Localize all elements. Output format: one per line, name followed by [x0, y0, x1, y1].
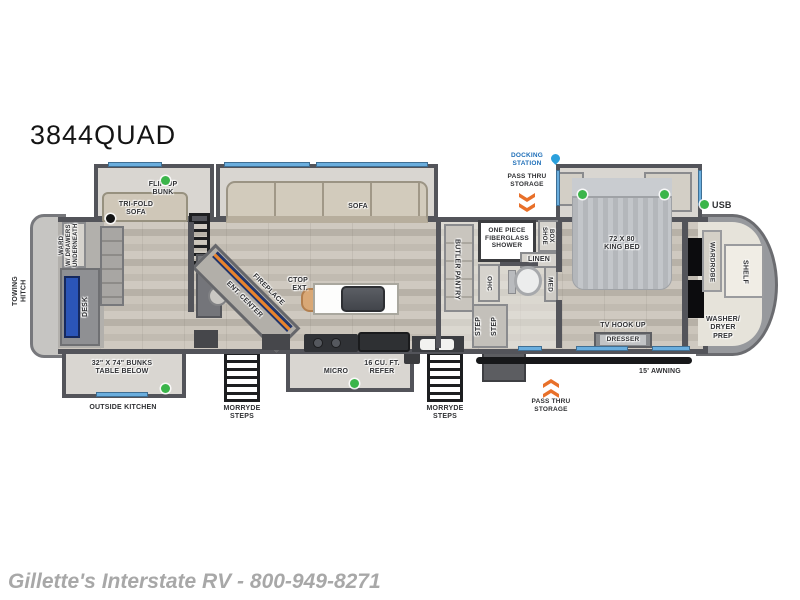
- washer-dryer-label: WASHER/ DRYER PREP: [700, 316, 746, 341]
- counter-left: [194, 330, 218, 348]
- bunks-indicator-dot: [161, 384, 170, 393]
- micro-label: MICRO: [316, 368, 356, 376]
- bunk-window: [108, 162, 162, 167]
- dresser-label: DRESSER: [600, 336, 646, 344]
- desk-label: DESK: [82, 288, 96, 326]
- king-bed-label: 72 X 80 KING BED: [594, 236, 650, 253]
- shower-label: ONE PIECE FIBERGLASS SHOWER: [479, 227, 535, 250]
- towing-hitch-label: TOWING HITCH: [12, 264, 26, 318]
- toilet: [514, 266, 542, 296]
- sofa-window-right: [316, 162, 428, 167]
- tv-hook-up-label: TV HOOK UP: [592, 322, 654, 330]
- floorplan-page: 3844QUAD Gillette's Interstate RV - 800-…: [0, 0, 800, 600]
- bunkroom-wall: [188, 222, 194, 312]
- wardrobe-label: WARDROBE: [708, 235, 716, 289]
- med-label: MED: [546, 271, 554, 299]
- refrigerator-top: [358, 332, 410, 352]
- outside-kitchen-label: OUTSIDE KITCHEN: [74, 404, 172, 412]
- bedroom-rear-wall: [682, 222, 688, 348]
- counter-mid: [262, 334, 290, 350]
- bunks-table-label: 32" X 74" BUNKS TABLE BELOW: [72, 360, 172, 377]
- usb-label: USB: [712, 200, 738, 211]
- docking-station-label: DOCKING STATION: [504, 152, 550, 167]
- sofa-window-left: [224, 162, 310, 167]
- sofa: [226, 181, 428, 223]
- step-label-1: STEP: [475, 309, 488, 343]
- tri-fold-sofa-label: TRI-FOLD SOFA: [110, 201, 162, 218]
- pass-thru-storage-box: [482, 350, 526, 382]
- step-label-2: STEP: [491, 309, 504, 343]
- bunk-indicator-dot: [161, 176, 170, 185]
- butler-pantry-label: BUTLER PANTRY: [452, 228, 460, 310]
- morryde-steps-right-label: MORRYDE STEPS: [423, 405, 467, 422]
- sofa-indicator-dot: [106, 214, 115, 223]
- chevron-up-icon: [543, 378, 559, 399]
- linen-label: LINEN: [521, 256, 557, 264]
- bed-window-left: [556, 170, 560, 206]
- stove-burner-right: [331, 338, 341, 348]
- water-drop-icon: [549, 152, 562, 165]
- morryde-steps-left-label: MORRYDE STEPS: [220, 405, 264, 422]
- morryde-steps-left: [224, 352, 260, 402]
- island-sink: [341, 286, 385, 312]
- pass-thru-top-label: PASS THRU STORAGE: [502, 173, 552, 188]
- kitchen-indicator-dot: [350, 379, 359, 388]
- living-bath-wall: [436, 222, 441, 348]
- bath-bedroom-wall-bottom: [556, 300, 562, 348]
- awning-label: 15' AWNING: [628, 368, 692, 376]
- bedroom-window-bottom-left: [576, 346, 628, 351]
- shelf-label: SHELF: [740, 252, 748, 292]
- ctop-ext-label: CTOP EXT.: [274, 277, 308, 294]
- stove-burner-left: [313, 338, 323, 348]
- bed-pillows: [572, 178, 672, 198]
- refer-label: 16 CU. FT. REFER: [356, 360, 408, 377]
- bedroom-window-bottom-right: [652, 346, 690, 351]
- ward-label: WARD W/ DRAWERS UNDERNEATH: [59, 220, 87, 270]
- pass-thru-bottom-label: PASS THRU STORAGE: [523, 398, 579, 413]
- dealer-footer: Gillette's Interstate RV - 800-949-8271: [8, 570, 381, 594]
- outside-kitchen-window: [96, 392, 148, 397]
- awning-bar: [476, 357, 692, 364]
- shoe-box-label: SHOE BOX: [540, 222, 554, 250]
- bed-indicator-right: [660, 190, 669, 199]
- morryde-steps-right: [427, 352, 463, 402]
- chevron-down-icon: [519, 192, 535, 213]
- bed-indicator-left: [578, 190, 587, 199]
- usb-indicator: [700, 200, 709, 209]
- bath-window-bottom: [518, 346, 542, 351]
- sofa-label: SOFA: [338, 203, 378, 211]
- ohc-label: OHC: [485, 270, 493, 298]
- drawer-column: [100, 226, 124, 306]
- desk-top: [64, 276, 80, 338]
- model-title: 3844QUAD: [30, 120, 176, 151]
- bath-bedroom-wall-top: [556, 222, 562, 272]
